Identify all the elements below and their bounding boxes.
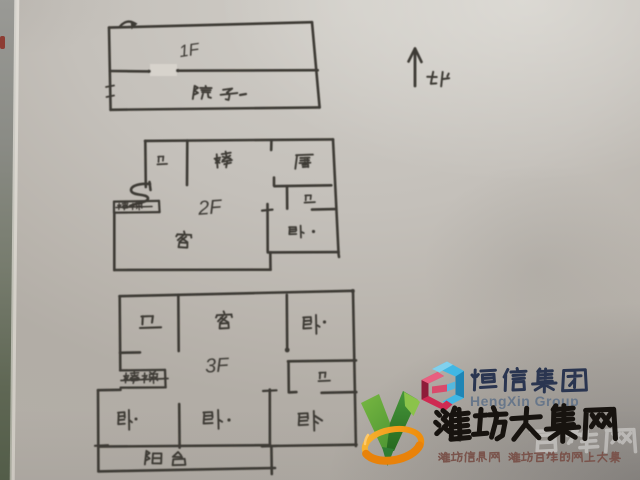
- svg-text:3F: 3F: [205, 354, 231, 377]
- svg-text:HengXin Group: HengXin Group: [470, 393, 579, 409]
- svg-text:2F: 2F: [196, 196, 224, 220]
- svg-text:1F: 1F: [178, 39, 202, 61]
